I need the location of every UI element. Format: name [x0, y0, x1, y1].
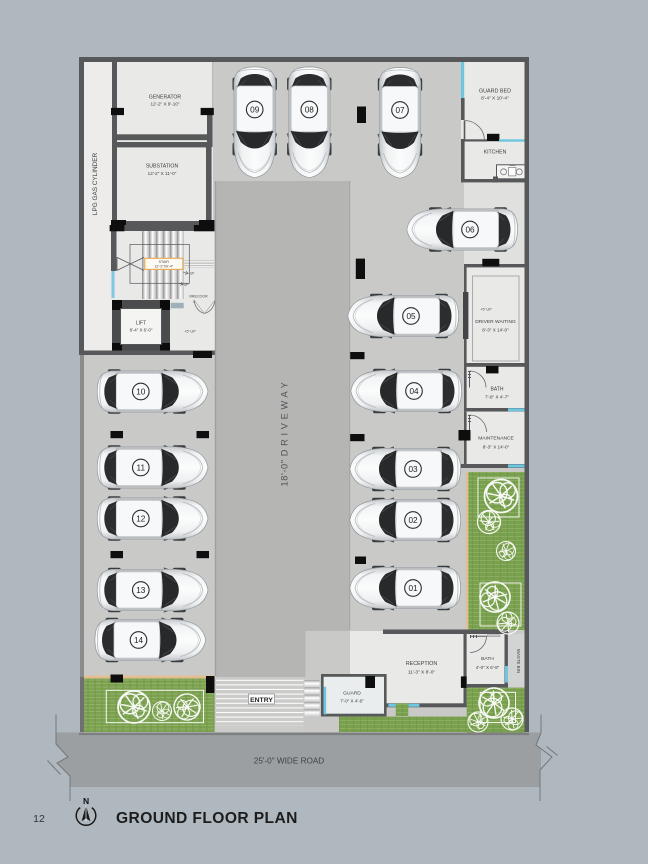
- svg-text:RRECOOR: RRECOOR: [189, 294, 208, 298]
- svg-text:10: 10: [136, 387, 146, 396]
- svg-text:7'-8" X 4'-7": 7'-8" X 4'-7": [485, 395, 509, 400]
- svg-text:ENTRY: ENTRY: [250, 697, 273, 704]
- svg-text:8'-4" X 10'-4": 8'-4" X 10'-4": [481, 96, 509, 102]
- svg-text:RECEPTION: RECEPTION: [406, 661, 438, 667]
- svg-text:DRIVER WAITING: DRIVER WAITING: [475, 319, 516, 325]
- svg-text:11'-3" X 8'-0": 11'-3" X 8'-0": [408, 670, 436, 676]
- svg-text:GUARD BED: GUARD BED: [479, 89, 511, 95]
- svg-text:12'-2"X9'-4": 12'-2"X9'-4": [154, 265, 173, 269]
- svg-text:+5' UP: +5' UP: [480, 308, 492, 312]
- svg-text:25'-0" WIDE ROAD: 25'-0" WIDE ROAD: [254, 757, 325, 766]
- svg-text:UP: UP: [190, 272, 194, 276]
- svg-text:04: 04: [409, 387, 419, 396]
- svg-text:UP: UP: [184, 283, 188, 287]
- svg-text:BATH: BATH: [481, 656, 494, 662]
- svg-text:13: 13: [136, 586, 146, 595]
- svg-text:14: 14: [134, 636, 144, 645]
- svg-text:GROUND FLOOR PLAN: GROUND FLOOR PLAN: [116, 810, 298, 827]
- svg-text:01: 01: [408, 584, 418, 593]
- svg-text:8'-3" X 14'-0": 8'-3" X 14'-0": [482, 328, 509, 333]
- svg-text:GUARD: GUARD: [343, 691, 361, 697]
- svg-text:03: 03: [408, 465, 418, 474]
- svg-text:8'-4" X 6'-0": 8'-4" X 6'-0": [130, 328, 153, 333]
- svg-text:LPG GAS CYLINDER: LPG GAS CYLINDER: [92, 153, 99, 216]
- svg-text:8'-3" X 14'-0": 8'-3" X 14'-0": [483, 445, 510, 450]
- svg-text:N: N: [83, 796, 89, 806]
- svg-text:WASTE BIN: WASTE BIN: [516, 649, 521, 673]
- svg-text:SUBSTATION: SUBSTATION: [146, 164, 179, 170]
- svg-text:09: 09: [250, 105, 260, 114]
- svg-text:BATH: BATH: [491, 387, 504, 393]
- svg-text:KITCHEN: KITCHEN: [484, 150, 507, 156]
- svg-text:06: 06: [465, 225, 475, 234]
- svg-text:STAIR: STAIR: [159, 260, 170, 264]
- svg-text:05: 05: [406, 312, 416, 321]
- svg-text:08: 08: [305, 105, 315, 114]
- svg-text:4'-0" X 6'-8": 4'-0" X 6'-8": [476, 665, 500, 670]
- svg-text:12: 12: [33, 813, 45, 825]
- svg-text:12'-2" X 11'-0": 12'-2" X 11'-0": [148, 171, 177, 176]
- svg-text:GENERATOR: GENERATOR: [149, 95, 182, 101]
- svg-text:12'-2" X 9'-10": 12'-2" X 9'-10": [150, 102, 179, 107]
- svg-text:LIFT: LIFT: [136, 321, 146, 327]
- svg-text:+5' UP: +5' UP: [184, 330, 196, 334]
- svg-text:12: 12: [136, 514, 146, 523]
- svg-text:7'-0" X 4'-6": 7'-0" X 4'-6": [340, 699, 364, 704]
- svg-text:02: 02: [408, 516, 418, 525]
- svg-text:07: 07: [395, 106, 405, 115]
- svg-text:MAINTENANCE: MAINTENANCE: [478, 436, 514, 442]
- svg-text:11: 11: [137, 463, 146, 472]
- svg-text:18'-0" D R I V E W A Y: 18'-0" D R I V E W A Y: [280, 382, 290, 487]
